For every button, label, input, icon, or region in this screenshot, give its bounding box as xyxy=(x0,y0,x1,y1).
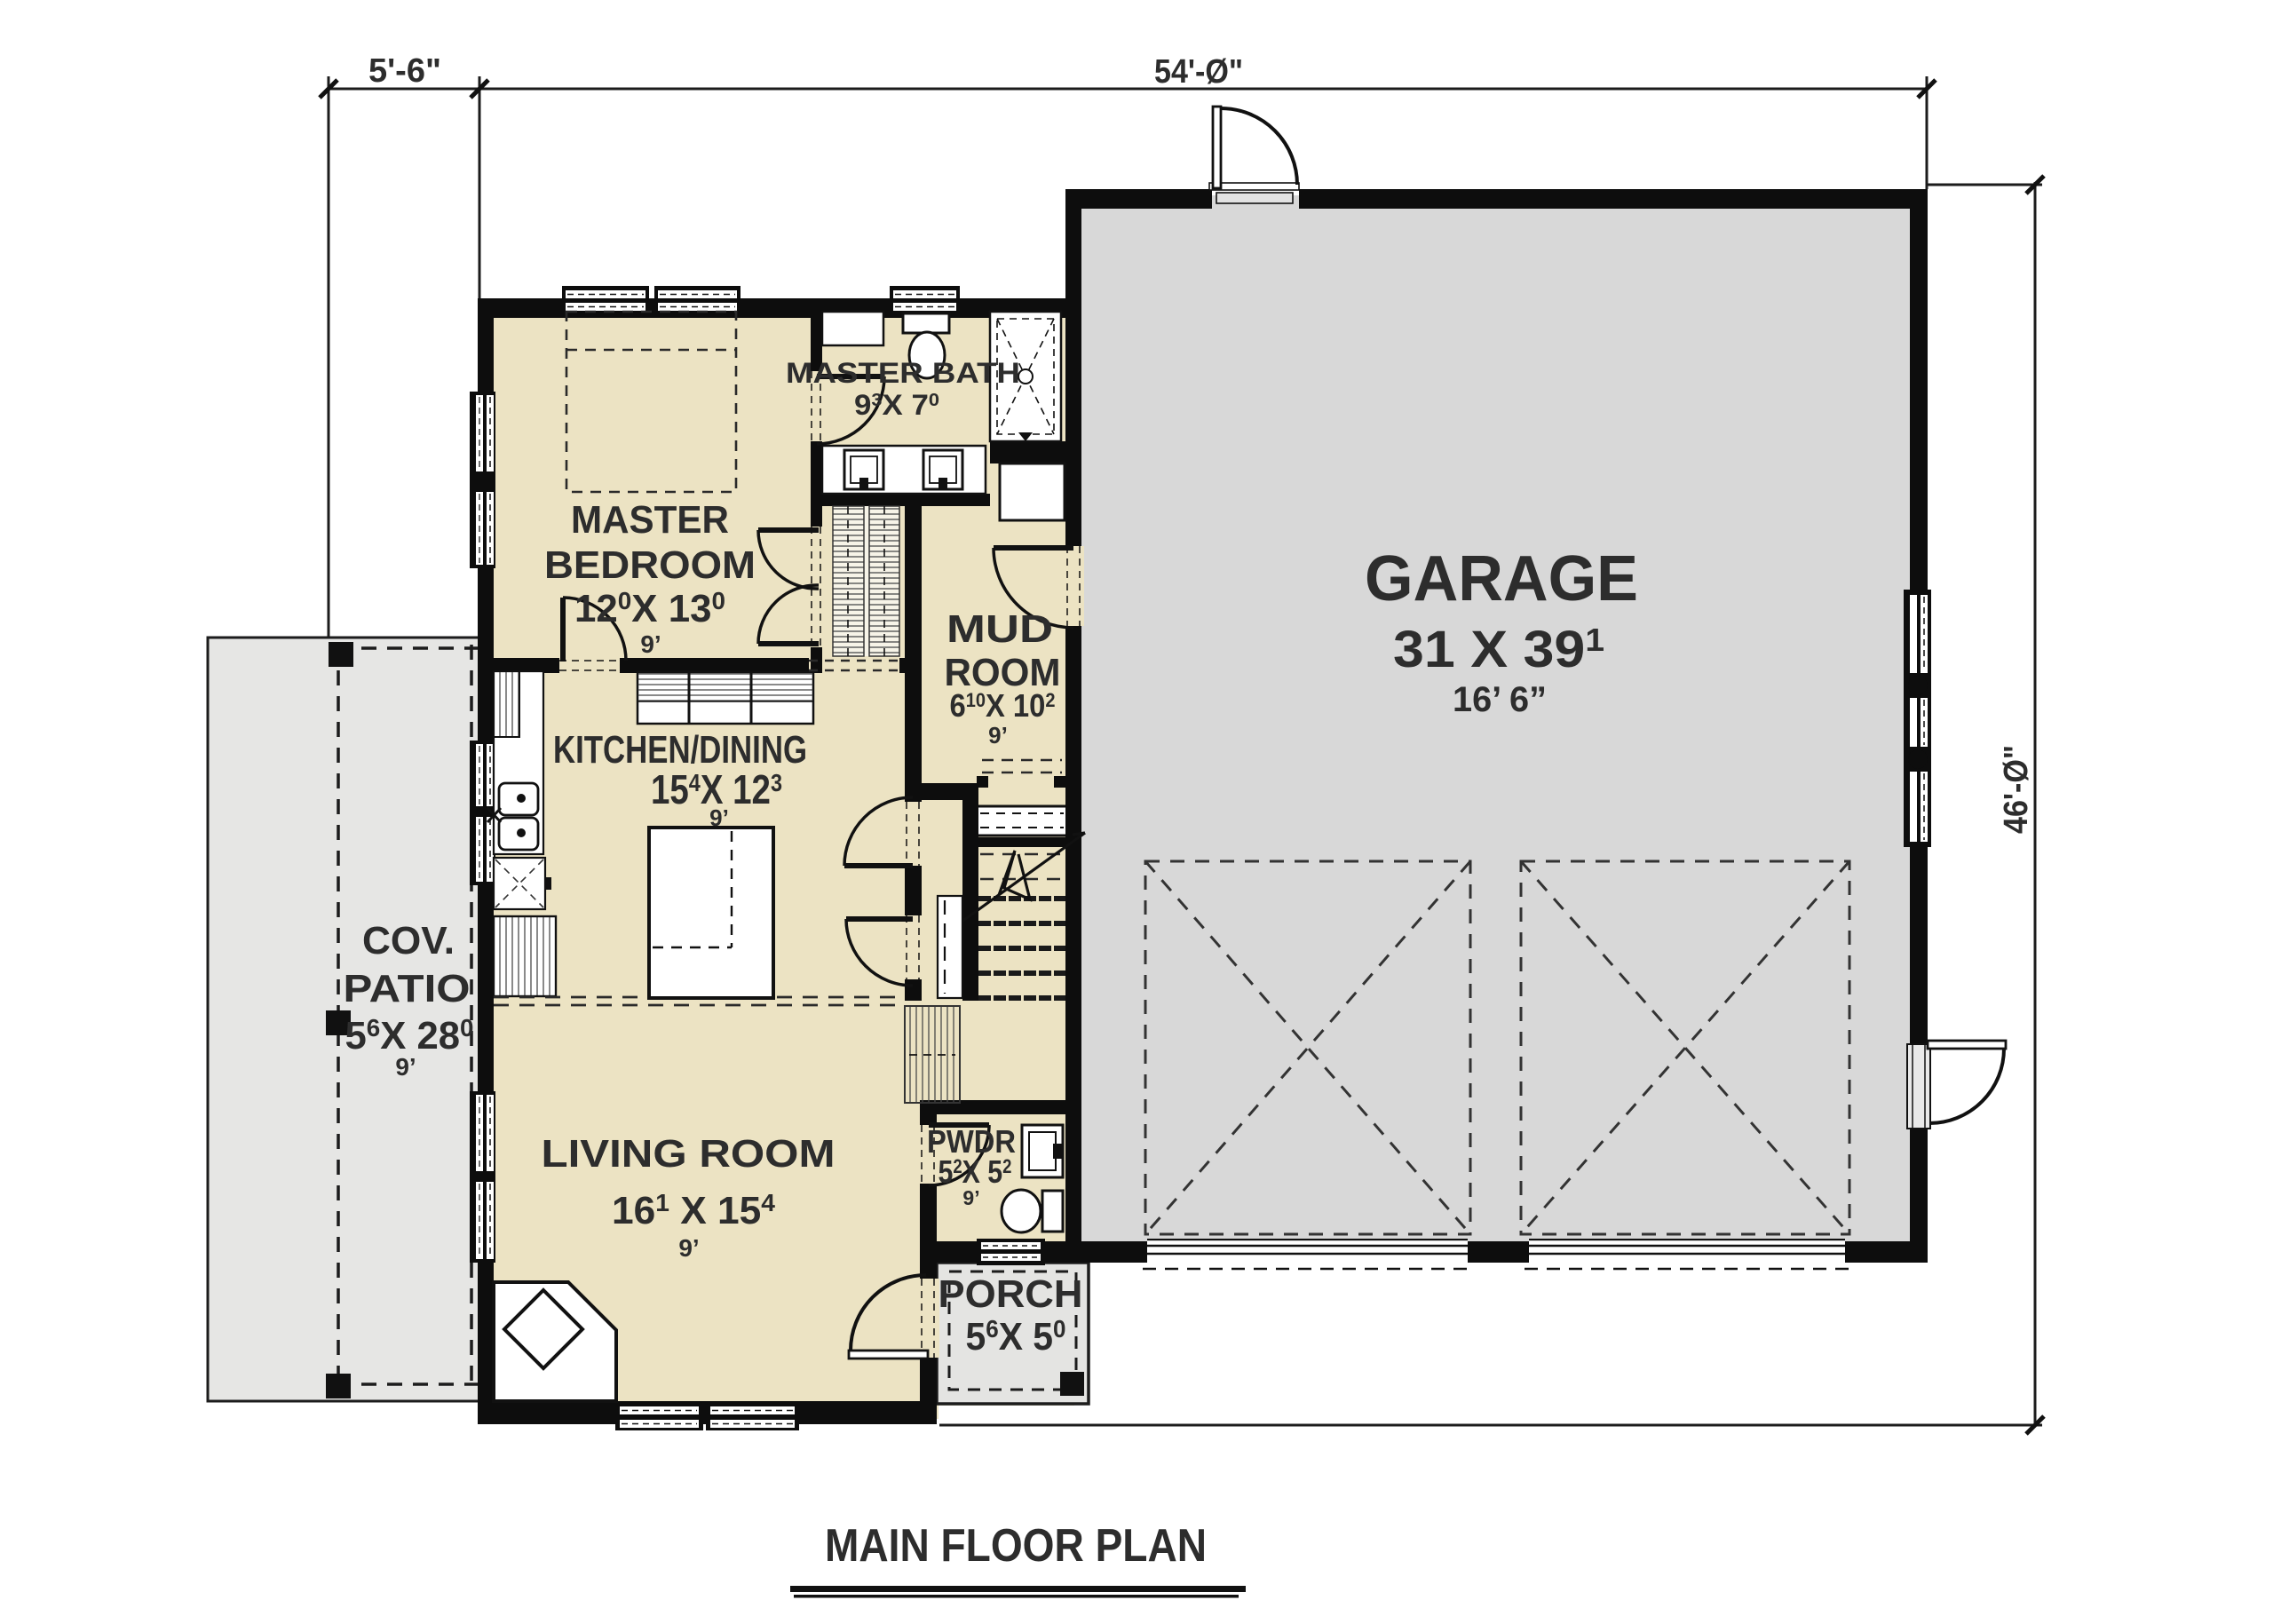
svg-text:5'-6": 5'-6" xyxy=(368,52,441,90)
svg-text:9’: 9’ xyxy=(962,1186,979,1209)
svg-text:56X 280: 56X 280 xyxy=(345,1014,474,1058)
svg-text:PORCH: PORCH xyxy=(939,1272,1083,1316)
svg-text:GARAGE: GARAGE xyxy=(1365,543,1638,614)
svg-text:16’ 6”: 16’ 6” xyxy=(1453,680,1547,719)
svg-text:93X 70: 93X 70 xyxy=(854,389,939,421)
svg-text:MUD: MUD xyxy=(946,607,1053,651)
svg-text:46'-Ø": 46'-Ø" xyxy=(1998,745,2035,834)
svg-text:KITCHEN/DINING: KITCHEN/DINING xyxy=(553,728,807,772)
svg-text:54'-Ø": 54'-Ø" xyxy=(1154,53,1243,91)
svg-text:COV.: COV. xyxy=(362,919,455,963)
svg-text:9’: 9’ xyxy=(640,630,661,658)
svg-text:LIVING ROOM: LIVING ROOM xyxy=(542,1132,836,1176)
svg-text:9’: 9’ xyxy=(678,1234,699,1262)
svg-text:52X 52: 52X 52 xyxy=(939,1153,1012,1190)
svg-text:120X 130: 120X 130 xyxy=(574,587,725,630)
svg-text:MASTER BATH: MASTER BATH xyxy=(786,357,1020,389)
svg-text:161 X 154: 161 X 154 xyxy=(612,1189,775,1232)
svg-text:9’: 9’ xyxy=(988,722,1008,749)
svg-text:MAIN FLOOR PLAN: MAIN FLOOR PLAN xyxy=(825,1520,1207,1572)
svg-text:56X 50: 56X 50 xyxy=(966,1315,1066,1359)
svg-text:9’: 9’ xyxy=(395,1053,416,1081)
svg-text:PATIO: PATIO xyxy=(344,967,471,1010)
svg-text:MASTER: MASTER xyxy=(571,498,729,542)
svg-text:9’: 9’ xyxy=(709,804,729,831)
svg-text:610X 102: 610X 102 xyxy=(950,687,1056,724)
svg-text:31 X 391: 31 X 391 xyxy=(1393,621,1604,678)
svg-text:BEDROOM: BEDROOM xyxy=(544,543,756,587)
